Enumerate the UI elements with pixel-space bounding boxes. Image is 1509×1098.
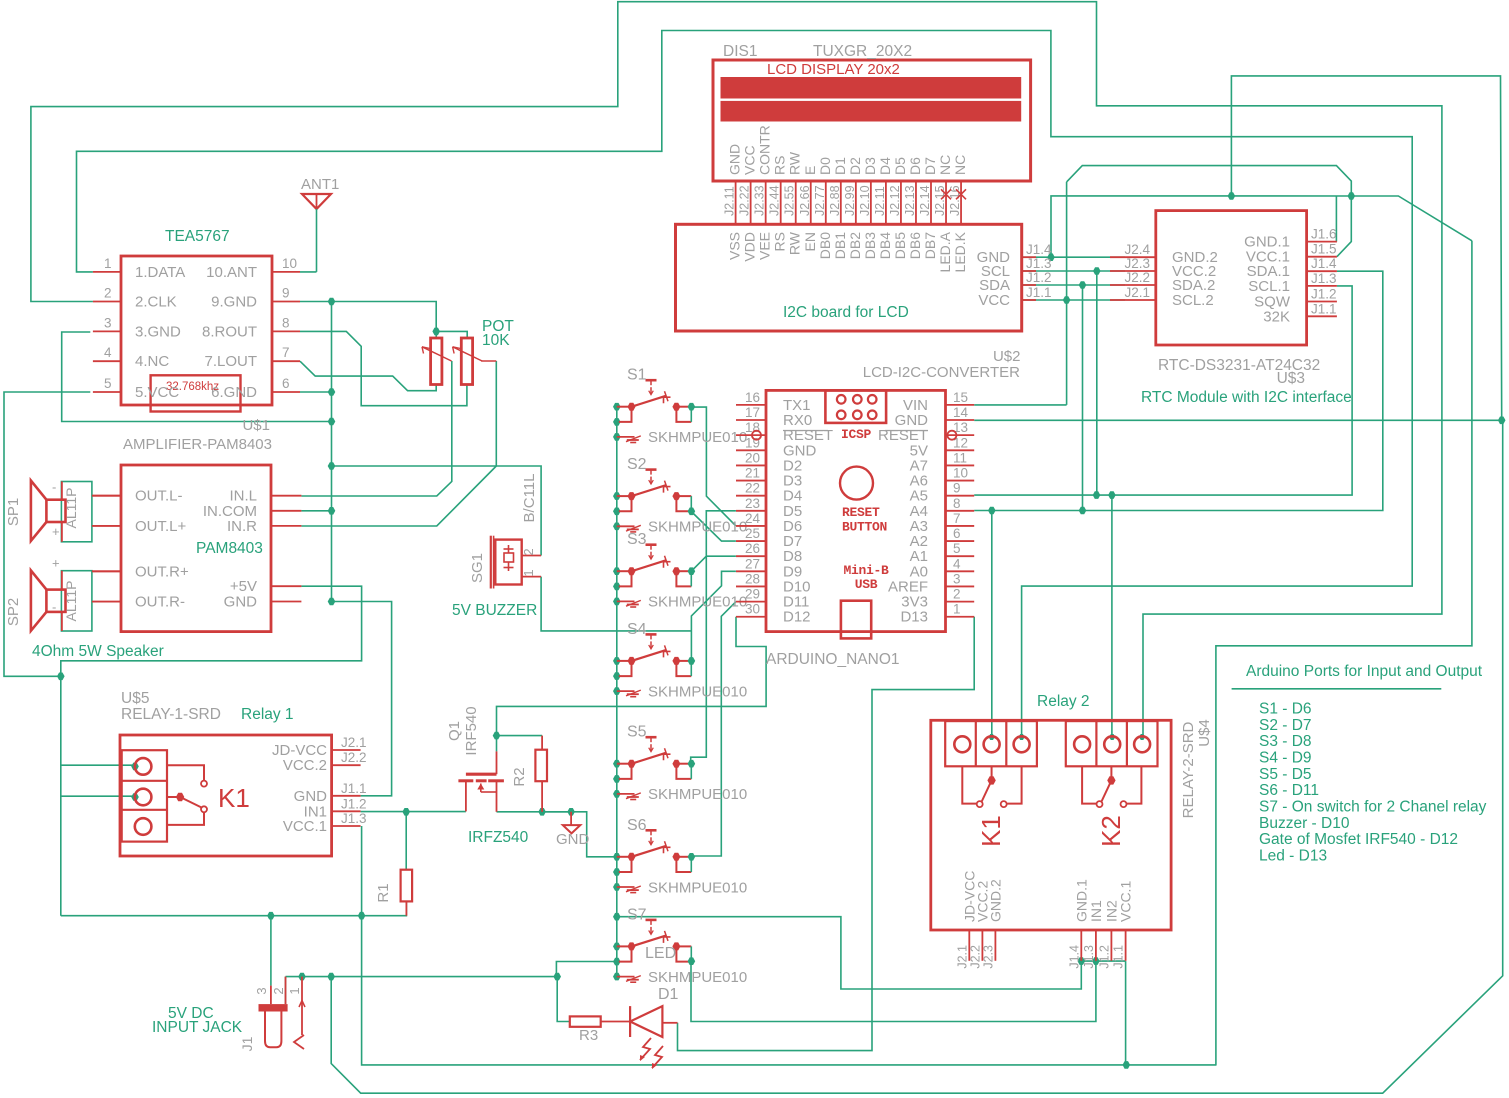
svg-text:GND.1: GND.1 bbox=[1073, 879, 1089, 922]
svg-text:SCL.2: SCL.2 bbox=[1172, 292, 1214, 309]
svg-text:DB2: DB2 bbox=[847, 232, 863, 259]
svg-text:J2.2: J2.2 bbox=[1124, 270, 1150, 285]
svg-text:SKHMPUE010: SKHMPUE010 bbox=[648, 683, 747, 700]
svg-text:VCC: VCC bbox=[978, 292, 1010, 309]
svg-text:S2 - D7: S2 - D7 bbox=[1259, 717, 1312, 734]
svg-text:D5: D5 bbox=[892, 157, 908, 175]
svg-text:CONTR: CONTR bbox=[757, 125, 773, 175]
svg-text:Mini-B: Mini-B bbox=[843, 563, 889, 578]
svg-text:10.ANT: 10.ANT bbox=[206, 264, 257, 281]
svg-text:5.VCC: 5.VCC bbox=[135, 384, 179, 401]
svg-text:2.CLK: 2.CLK bbox=[135, 294, 177, 311]
svg-text:-: - bbox=[52, 600, 56, 615]
svg-text:J2.22: J2.22 bbox=[738, 185, 752, 216]
svg-text:ARDUINO_NANO1: ARDUINO_NANO1 bbox=[766, 651, 900, 668]
svg-text:D7: D7 bbox=[922, 157, 938, 175]
svg-text:SP2: SP2 bbox=[5, 598, 22, 626]
svg-text:R3: R3 bbox=[579, 1027, 598, 1044]
svg-text:VSS: VSS bbox=[727, 232, 743, 260]
svg-text:SKHMPUE010: SKHMPUE010 bbox=[648, 594, 747, 611]
svg-text:J2.44: J2.44 bbox=[768, 185, 782, 216]
svg-text:16: 16 bbox=[745, 390, 760, 405]
svg-text:VCC.1: VCC.1 bbox=[283, 818, 327, 835]
svg-text:8: 8 bbox=[953, 496, 961, 511]
svg-text:J1.2: J1.2 bbox=[341, 796, 367, 811]
svg-text:D1: D1 bbox=[832, 157, 848, 175]
svg-text:J2.1: J2.1 bbox=[955, 945, 969, 969]
svg-text:30: 30 bbox=[745, 602, 760, 617]
svg-text:OUT.R-: OUT.R- bbox=[135, 594, 185, 611]
svg-text:VDD: VDD bbox=[742, 232, 758, 262]
svg-text:Relay 2: Relay 2 bbox=[1037, 693, 1090, 710]
svg-text:J2.66: J2.66 bbox=[798, 185, 812, 216]
svg-text:J1.1: J1.1 bbox=[1026, 285, 1052, 300]
svg-text:7: 7 bbox=[953, 511, 961, 526]
svg-text:SG1: SG1 bbox=[469, 553, 486, 583]
svg-text:RW: RW bbox=[787, 231, 803, 255]
svg-text:S1: S1 bbox=[627, 367, 647, 384]
svg-text:S3 - D8: S3 - D8 bbox=[1259, 733, 1312, 750]
svg-text:+: + bbox=[52, 524, 60, 539]
svg-text:RTC Module with I2C interface: RTC Module with I2C interface bbox=[1141, 389, 1352, 406]
svg-text:VCC: VCC bbox=[742, 145, 758, 175]
svg-text:Q1: Q1 bbox=[446, 721, 463, 741]
svg-text:D0: D0 bbox=[817, 157, 833, 175]
svg-text:J2.2: J2.2 bbox=[968, 945, 982, 969]
svg-text:OUT.L-: OUT.L- bbox=[135, 488, 183, 505]
svg-text:J2.4: J2.4 bbox=[1124, 242, 1150, 257]
svg-text:R1: R1 bbox=[375, 883, 392, 902]
svg-text:27: 27 bbox=[745, 556, 760, 571]
svg-text:D13: D13 bbox=[900, 609, 928, 626]
svg-text:+: + bbox=[52, 555, 60, 570]
svg-text:AMPLIFIER-PAM8403: AMPLIFIER-PAM8403 bbox=[123, 436, 272, 453]
svg-text:S6: S6 bbox=[627, 817, 647, 834]
svg-text:4.NC: 4.NC bbox=[135, 353, 169, 370]
svg-text:E: E bbox=[802, 166, 818, 175]
svg-text:5: 5 bbox=[104, 376, 112, 391]
svg-text:J2.99: J2.99 bbox=[843, 185, 857, 216]
svg-text:SKHMPUE010: SKHMPUE010 bbox=[648, 879, 747, 896]
svg-text:Arduino Ports for Input and Ou: Arduino Ports for Input and Output bbox=[1246, 663, 1483, 680]
svg-text:J2.10: J2.10 bbox=[858, 185, 872, 216]
svg-text:9.GND: 9.GND bbox=[211, 294, 257, 311]
svg-text:1.DATA: 1.DATA bbox=[135, 264, 185, 281]
svg-text:U$2: U$2 bbox=[993, 348, 1021, 365]
svg-text:2: 2 bbox=[953, 587, 961, 602]
svg-text:GND: GND bbox=[727, 144, 743, 175]
svg-text:DB7: DB7 bbox=[922, 232, 938, 259]
svg-text:PAM8403: PAM8403 bbox=[196, 540, 263, 557]
svg-text:21: 21 bbox=[745, 466, 760, 481]
svg-text:5V BUZZER: 5V BUZZER bbox=[452, 602, 537, 619]
svg-text:SCL.1: SCL.1 bbox=[1248, 278, 1290, 295]
svg-text:J1.1: J1.1 bbox=[1311, 301, 1337, 316]
svg-text:14: 14 bbox=[953, 405, 969, 420]
svg-text:D3: D3 bbox=[862, 157, 878, 175]
svg-text:9: 9 bbox=[953, 481, 961, 496]
svg-text:J2.33: J2.33 bbox=[753, 185, 767, 216]
svg-text:J1.1: J1.1 bbox=[341, 781, 367, 796]
svg-text:2: 2 bbox=[104, 286, 112, 301]
svg-text:VCC.2: VCC.2 bbox=[283, 757, 327, 774]
svg-text:IRFZ540: IRFZ540 bbox=[468, 829, 529, 846]
svg-text:J2.15: J2.15 bbox=[933, 185, 947, 216]
svg-text:10: 10 bbox=[282, 256, 297, 271]
svg-text:RESET: RESET bbox=[842, 505, 880, 520]
svg-text:17: 17 bbox=[745, 405, 760, 420]
svg-text:OUT.R+: OUT.R+ bbox=[135, 563, 189, 580]
svg-text:2: 2 bbox=[521, 548, 536, 555]
svg-text:J1.3: J1.3 bbox=[1026, 256, 1052, 271]
svg-text:J1: J1 bbox=[239, 1036, 255, 1051]
svg-text:J2.77: J2.77 bbox=[813, 185, 827, 216]
svg-text:20: 20 bbox=[745, 450, 760, 465]
svg-text:Buzzer - D10: Buzzer - D10 bbox=[1259, 815, 1350, 832]
svg-text:DB4: DB4 bbox=[877, 232, 893, 259]
svg-text:J2.88: J2.88 bbox=[828, 185, 842, 216]
svg-text:J2.1: J2.1 bbox=[341, 735, 367, 750]
svg-text:SKHMPUE010: SKHMPUE010 bbox=[648, 969, 747, 986]
svg-text:J1.4: J1.4 bbox=[1311, 256, 1337, 271]
svg-text:J1.1: J1.1 bbox=[1112, 945, 1126, 969]
svg-text:J1.6: J1.6 bbox=[1311, 227, 1337, 242]
svg-text:J1.5: J1.5 bbox=[1311, 242, 1337, 257]
svg-text:U$5: U$5 bbox=[121, 690, 149, 707]
svg-text:11: 11 bbox=[953, 450, 967, 465]
svg-text:1: 1 bbox=[521, 569, 536, 576]
svg-text:J1.4: J1.4 bbox=[1067, 945, 1081, 969]
svg-text:-: - bbox=[52, 480, 56, 495]
svg-text:RW: RW bbox=[787, 151, 803, 175]
svg-text:IN.R: IN.R bbox=[227, 518, 257, 535]
svg-text:IRF540: IRF540 bbox=[463, 706, 480, 755]
svg-text:OUT.L+: OUT.L+ bbox=[135, 518, 187, 535]
svg-text:24: 24 bbox=[745, 511, 761, 526]
svg-text:RELAY-2-SRD: RELAY-2-SRD bbox=[1180, 721, 1197, 818]
svg-text:J1.2: J1.2 bbox=[1026, 270, 1052, 285]
svg-text:B/C11L: B/C11L bbox=[521, 474, 538, 523]
svg-text:D4: D4 bbox=[877, 157, 893, 175]
svg-text:DB3: DB3 bbox=[862, 232, 878, 259]
svg-text:5: 5 bbox=[953, 541, 961, 556]
svg-text:LCD-I2C-CONVERTER: LCD-I2C-CONVERTER bbox=[863, 364, 1020, 381]
svg-text:J2.3: J2.3 bbox=[981, 945, 995, 969]
svg-text:J1.4: J1.4 bbox=[1026, 242, 1052, 257]
svg-text:D1: D1 bbox=[658, 986, 679, 1003]
svg-text:IN1: IN1 bbox=[1088, 900, 1104, 922]
svg-text:TUXGR_20X2: TUXGR_20X2 bbox=[813, 43, 912, 60]
svg-text:S3: S3 bbox=[627, 531, 647, 548]
svg-text:4Ohm 5W Speaker: 4Ohm 5W Speaker bbox=[32, 643, 164, 660]
svg-text:J2.3: J2.3 bbox=[1124, 256, 1150, 271]
svg-text:SP1: SP1 bbox=[5, 498, 22, 526]
svg-text:J1.2: J1.2 bbox=[1311, 287, 1337, 302]
svg-text:J2.55: J2.55 bbox=[783, 185, 797, 216]
svg-text:ICSP: ICSP bbox=[841, 427, 872, 442]
svg-text:DIS1: DIS1 bbox=[723, 43, 757, 60]
svg-text:8.ROUT: 8.ROUT bbox=[202, 323, 257, 340]
svg-text:29: 29 bbox=[745, 587, 760, 602]
svg-text:RS: RS bbox=[772, 156, 788, 175]
svg-text:BUTTON: BUTTON bbox=[842, 520, 887, 535]
svg-text:S7: S7 bbox=[627, 906, 647, 923]
svg-text:DB6: DB6 bbox=[907, 232, 923, 259]
svg-text:1: 1 bbox=[104, 256, 112, 271]
svg-text:Relay 1: Relay 1 bbox=[241, 706, 294, 723]
svg-text:J2.2: J2.2 bbox=[341, 750, 367, 765]
svg-text:LED.K: LED.K bbox=[952, 231, 968, 272]
svg-text:3: 3 bbox=[953, 571, 961, 586]
svg-text:DB1: DB1 bbox=[832, 232, 848, 259]
svg-text:15: 15 bbox=[953, 390, 968, 405]
svg-text:NC: NC bbox=[952, 155, 968, 175]
svg-text:RS: RS bbox=[772, 232, 788, 251]
svg-text:U$4: U$4 bbox=[1196, 719, 1213, 747]
svg-text:10: 10 bbox=[953, 466, 968, 481]
svg-text:3: 3 bbox=[254, 987, 269, 994]
svg-text:VCC.1: VCC.1 bbox=[1118, 881, 1134, 922]
svg-text:EN: EN bbox=[802, 232, 818, 251]
svg-text:GND: GND bbox=[556, 831, 590, 848]
svg-text:GND: GND bbox=[294, 788, 328, 805]
svg-text:S4: S4 bbox=[627, 621, 647, 638]
svg-text:S2: S2 bbox=[627, 456, 647, 473]
svg-text:R2: R2 bbox=[511, 767, 528, 786]
svg-text:1: 1 bbox=[287, 987, 302, 994]
svg-text:K1: K1 bbox=[218, 783, 250, 813]
svg-text:28: 28 bbox=[745, 571, 760, 586]
svg-text:INPUT JACK: INPUT JACK bbox=[152, 1019, 243, 1036]
svg-text:S5: S5 bbox=[627, 724, 647, 741]
svg-text:RELAY-1-SRD: RELAY-1-SRD bbox=[121, 706, 221, 723]
svg-text:Gate of Mosfet IRF540 - D12: Gate of Mosfet IRF540 - D12 bbox=[1259, 831, 1458, 848]
svg-text:6.GND: 6.GND bbox=[211, 384, 257, 401]
svg-text:ANT1: ANT1 bbox=[301, 176, 339, 193]
svg-text:LED: LED bbox=[645, 945, 676, 962]
svg-text:DB5: DB5 bbox=[892, 232, 908, 259]
svg-text:VEE: VEE bbox=[757, 232, 773, 260]
svg-text:J1.2: J1.2 bbox=[1097, 945, 1111, 969]
svg-text:32K: 32K bbox=[1263, 308, 1290, 325]
svg-text:D12: D12 bbox=[783, 609, 811, 626]
svg-text:10K: 10K bbox=[482, 332, 510, 349]
svg-text:1: 1 bbox=[953, 602, 961, 617]
svg-text:8: 8 bbox=[282, 315, 290, 330]
svg-text:2: 2 bbox=[271, 987, 286, 994]
svg-text:LCD DISPLAY 20x2: LCD DISPLAY 20x2 bbox=[767, 61, 900, 78]
svg-text:DB0: DB0 bbox=[817, 232, 833, 259]
svg-text:SKHMPUE010: SKHMPUE010 bbox=[648, 786, 747, 803]
svg-text:6: 6 bbox=[282, 376, 290, 391]
svg-text:I2C board for LCD: I2C board for LCD bbox=[783, 304, 909, 321]
svg-text:6: 6 bbox=[953, 526, 961, 541]
svg-text:GND: GND bbox=[224, 594, 258, 611]
svg-text:J2.12: J2.12 bbox=[888, 185, 902, 216]
svg-text:J2.11: J2.11 bbox=[723, 186, 737, 216]
svg-text:D6: D6 bbox=[907, 157, 923, 175]
svg-text:AL11P: AL11P bbox=[63, 581, 79, 622]
svg-text:U$1: U$1 bbox=[242, 417, 270, 434]
svg-text:22: 22 bbox=[745, 481, 760, 496]
svg-text:4: 4 bbox=[104, 345, 112, 360]
svg-text:LED.A: LED.A bbox=[937, 231, 953, 272]
svg-text:S1 - D6: S1 - D6 bbox=[1259, 701, 1312, 718]
svg-text:NC: NC bbox=[937, 155, 953, 175]
svg-text:S7 - On switch for 2 Chanel re: S7 - On switch for 2 Chanel relay bbox=[1259, 798, 1487, 815]
svg-text:7.LOUT: 7.LOUT bbox=[204, 353, 257, 370]
svg-text:S4 - D9: S4 - D9 bbox=[1259, 749, 1312, 766]
svg-text:9: 9 bbox=[282, 286, 290, 301]
svg-text:J2.14: J2.14 bbox=[918, 185, 932, 216]
svg-text:3: 3 bbox=[104, 315, 112, 330]
svg-text:AL11P: AL11P bbox=[63, 488, 79, 529]
svg-text:J2.13: J2.13 bbox=[903, 185, 917, 216]
svg-text:J2.11: J2.11 bbox=[873, 186, 887, 216]
svg-text:26: 26 bbox=[745, 541, 760, 556]
svg-text:K1: K1 bbox=[976, 815, 1006, 847]
svg-text:S6 - D11: S6 - D11 bbox=[1259, 782, 1319, 799]
svg-text:U$3: U$3 bbox=[1277, 370, 1305, 387]
svg-text:TEA5767: TEA5767 bbox=[165, 228, 230, 245]
svg-text:J2.1: J2.1 bbox=[1124, 285, 1150, 300]
svg-text:3.GND: 3.GND bbox=[135, 323, 181, 340]
svg-text:25: 25 bbox=[745, 526, 760, 541]
svg-text:SKHMPUE010: SKHMPUE010 bbox=[648, 429, 747, 446]
svg-text:J1.3: J1.3 bbox=[1311, 271, 1337, 286]
svg-text:GND.2: GND.2 bbox=[987, 879, 1003, 922]
svg-text:23: 23 bbox=[745, 496, 760, 511]
svg-text:J1.3: J1.3 bbox=[341, 811, 367, 826]
svg-text:SKHMPUE010: SKHMPUE010 bbox=[648, 519, 747, 536]
svg-text:J1.3: J1.3 bbox=[1082, 945, 1096, 969]
svg-text:D2: D2 bbox=[847, 157, 863, 175]
svg-text:K2: K2 bbox=[1096, 815, 1126, 847]
svg-text:7: 7 bbox=[282, 345, 290, 360]
svg-text:Led - D13: Led - D13 bbox=[1259, 847, 1327, 864]
svg-text:S5 - D5: S5 - D5 bbox=[1259, 766, 1312, 783]
svg-text:USB: USB bbox=[855, 577, 878, 592]
svg-text:4: 4 bbox=[953, 556, 961, 571]
